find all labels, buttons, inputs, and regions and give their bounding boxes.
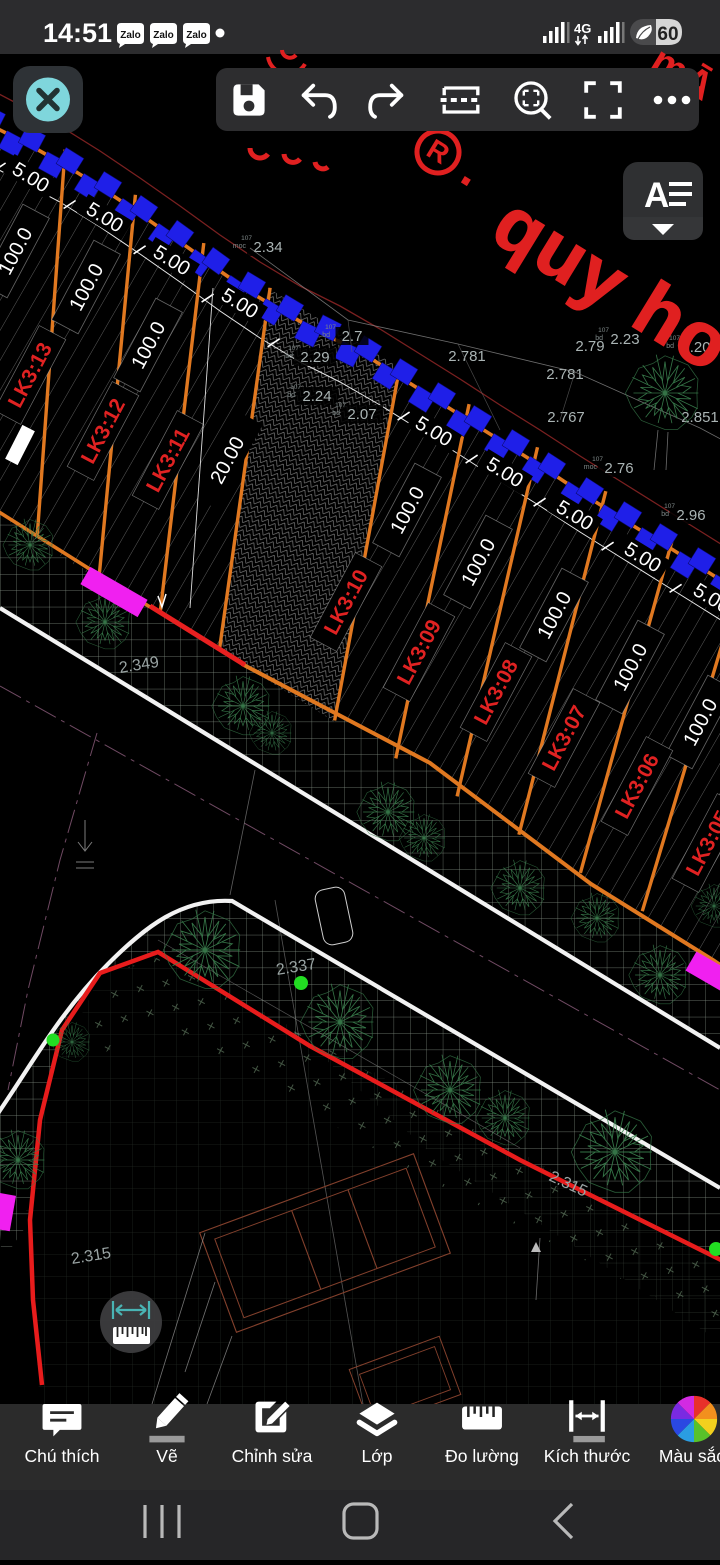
svg-text:107: 107 (335, 402, 346, 409)
svg-text:bd: bd (285, 353, 293, 360)
svg-text:107: 107 (241, 235, 252, 242)
svg-text:Kích thước: Kích thước (544, 1446, 631, 1466)
svg-text:Zalo: Zalo (120, 30, 141, 41)
svg-text:14:51: 14:51 (43, 18, 112, 48)
svg-text:bd: bd (595, 335, 603, 342)
svg-text:107: 107 (592, 456, 603, 463)
svg-text:2.07: 2.07 (347, 406, 376, 423)
svg-text:107: 107 (290, 384, 301, 391)
svg-text:2.76: 2.76 (604, 460, 633, 477)
svg-text:A: A (644, 176, 669, 215)
svg-text:2.781: 2.781 (546, 366, 584, 383)
svg-text:Lớp: Lớp (362, 1446, 393, 1466)
svg-text:107: 107 (325, 324, 336, 331)
svg-text:2.24: 2.24 (302, 388, 331, 405)
svg-text:bd: bd (322, 332, 330, 339)
svg-text:Chú thích: Chú thích (25, 1446, 100, 1466)
svg-text:2.7: 2.7 (342, 328, 363, 345)
svg-text:107: 107 (288, 345, 299, 352)
svg-text:bd: bd (661, 511, 669, 518)
svg-text:Màu sắc: Màu sắc (659, 1445, 720, 1466)
svg-text:moc: moc (233, 243, 247, 250)
svg-text:Zalo: Zalo (153, 30, 174, 41)
svg-text:2.29: 2.29 (300, 349, 329, 366)
svg-text:107: 107 (664, 503, 675, 510)
svg-text:Zalo: Zalo (186, 30, 207, 41)
svg-text:2.851: 2.851 (681, 409, 719, 426)
svg-text:2.96: 2.96 (676, 507, 705, 524)
svg-text:4G: 4G (574, 21, 591, 36)
svg-text:Đo lường: Đo lường (445, 1446, 519, 1466)
svg-text:bd: bd (332, 410, 340, 417)
svg-text:Chỉnh sửa: Chỉnh sửa (232, 1446, 313, 1466)
svg-text:moc: moc (584, 464, 598, 471)
svg-text:2.767: 2.767 (547, 409, 585, 426)
svg-text:Vẽ: Vẽ (156, 1446, 177, 1466)
svg-text:bd: bd (287, 392, 295, 399)
